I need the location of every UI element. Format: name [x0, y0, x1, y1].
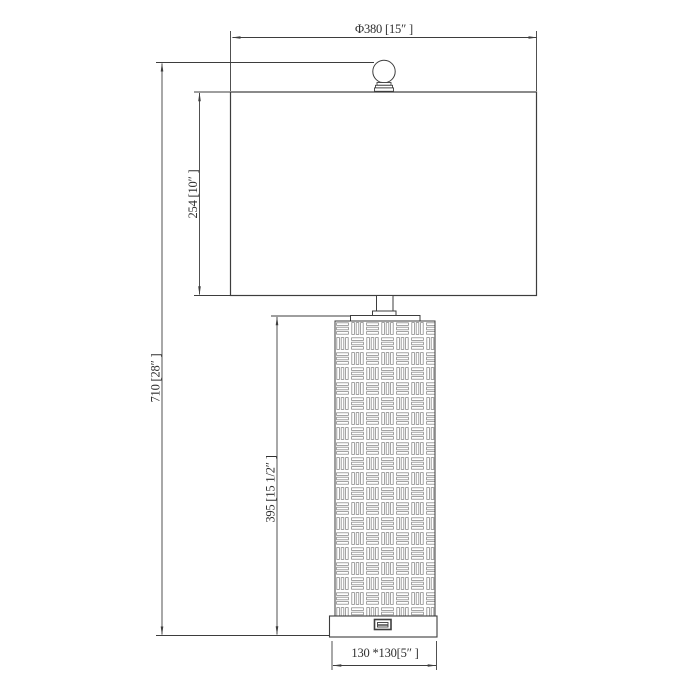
lamp-technical-drawing-page: 710 [28″ ] 254 [10″ ] 395 [15 1/2″ ] Φ38… [0, 0, 700, 700]
arrow-up-icon [161, 63, 164, 72]
lamp-technical-drawing: 710 [28″ ] 254 [10″ ] 395 [15 1/2″ ] Φ38… [0, 0, 700, 700]
dim-shade-height-label: 254 [10″ ] [186, 169, 200, 218]
collar [351, 316, 421, 322]
arrow-up-icon [198, 92, 201, 101]
arrow-down-icon [198, 286, 201, 295]
finial-ball [373, 60, 395, 82]
dim-base-footprint-label: 130 *130[5″ ] [351, 646, 418, 660]
lamp-shade [231, 92, 537, 296]
arrow-up-icon [276, 316, 279, 325]
dim-body-height-label: 395 [15 1/2″ ] [264, 455, 278, 522]
dim-total-height-label: 710 [28″ ] [149, 353, 163, 402]
arrow-right-icon [428, 664, 437, 667]
arrow-down-icon [276, 626, 279, 635]
neck-flare [373, 311, 397, 316]
arrow-left-icon [332, 664, 341, 667]
lamp [231, 60, 537, 637]
arrow-down-icon [161, 627, 164, 636]
dim-shade-diameter-label: Φ380 [15″ ] [355, 22, 413, 36]
finial-washer-stack [375, 83, 394, 92]
neck [377, 296, 394, 312]
body-basketweave [335, 321, 435, 616]
arrow-left-icon [232, 36, 241, 39]
